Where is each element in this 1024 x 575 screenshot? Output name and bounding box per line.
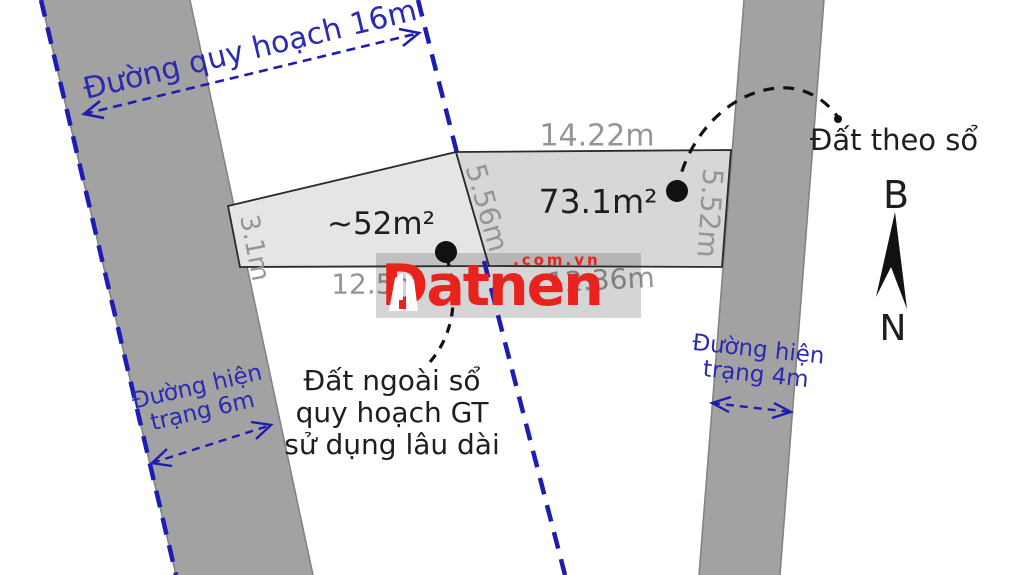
certificate-parcel-area: 73.1m² bbox=[539, 184, 658, 220]
land-plot-diagram: 12.5m 12.36m Đường quy hoạch 16m Đường h… bbox=[0, 0, 1024, 575]
watermark-building-icon bbox=[387, 271, 423, 313]
outside-parcel-area: ~52m² bbox=[327, 207, 435, 241]
certificate-parcel-callout-label: Đất theo sổ bbox=[810, 125, 978, 157]
leader-end-dot bbox=[834, 115, 842, 123]
dimension-right-certificate-parcel: 5.52m bbox=[691, 167, 728, 259]
compass-south-letter: N bbox=[880, 309, 907, 349]
compass-north-letter: B bbox=[883, 175, 909, 217]
dimension-top-certificate-parcel: 14.22m bbox=[539, 120, 654, 153]
outside-parcel-note: Đất ngoài sổ quy hoạch GT sử dụng lâu dà… bbox=[284, 365, 499, 461]
marker-dot-certificate-parcel bbox=[666, 180, 688, 202]
